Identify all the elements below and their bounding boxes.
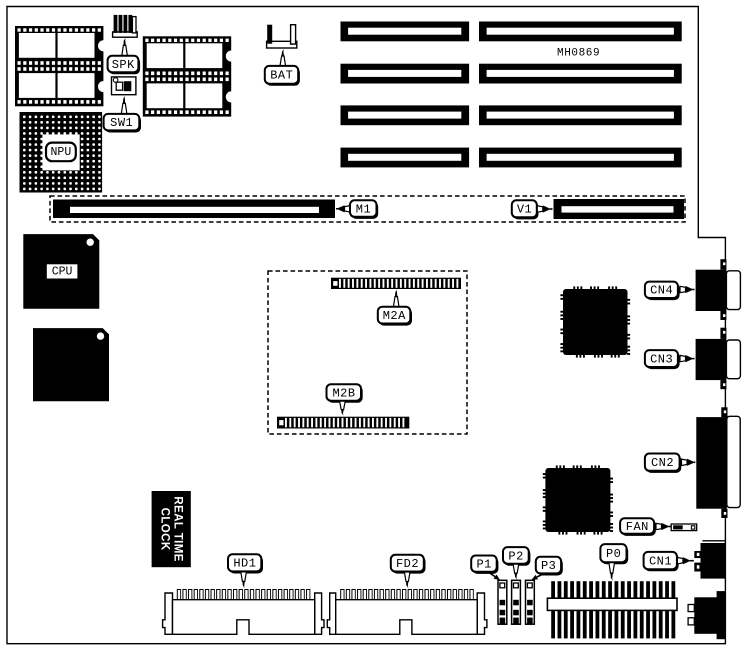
svg-text:FD2: FD2 bbox=[396, 557, 419, 571]
svg-text:MH0869: MH0869 bbox=[557, 48, 600, 60]
svg-text:CPU: CPU bbox=[52, 265, 73, 278]
svg-text:SW1: SW1 bbox=[110, 116, 133, 130]
svg-text:CN3: CN3 bbox=[650, 352, 673, 366]
svg-text:M2A: M2A bbox=[383, 309, 406, 323]
svg-text:CN4: CN4 bbox=[650, 284, 673, 298]
svg-text:M1: M1 bbox=[356, 202, 371, 216]
svg-text:P3: P3 bbox=[541, 559, 556, 573]
svg-text:NPU: NPU bbox=[51, 146, 72, 159]
svg-text:SPK: SPK bbox=[112, 58, 135, 72]
svg-text:CLOCK: CLOCK bbox=[159, 508, 171, 551]
svg-text:BAT: BAT bbox=[270, 69, 293, 83]
svg-text:HD1: HD1 bbox=[233, 557, 256, 571]
svg-text:P2: P2 bbox=[508, 549, 523, 563]
svg-text:FAN: FAN bbox=[626, 520, 649, 534]
svg-text:P0: P0 bbox=[606, 547, 621, 561]
svg-text:V1: V1 bbox=[517, 203, 532, 217]
svg-text:M2B: M2B bbox=[332, 386, 355, 400]
svg-text:CN1: CN1 bbox=[649, 554, 672, 568]
svg-text:P1: P1 bbox=[476, 558, 491, 572]
svg-text:REAL TIME: REAL TIME bbox=[172, 496, 184, 561]
svg-text:CN2: CN2 bbox=[651, 456, 674, 470]
